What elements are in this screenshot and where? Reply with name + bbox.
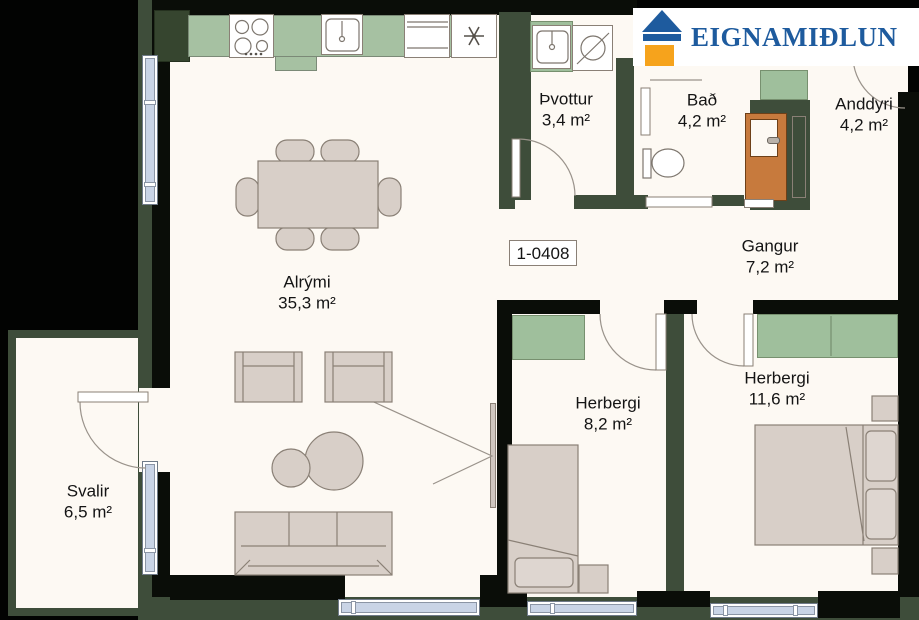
burner-icon: [252, 19, 268, 35]
burner-icon: [257, 41, 268, 52]
pillow: [515, 558, 573, 587]
room-name: Anddyri: [835, 94, 893, 115]
dining-table: [258, 161, 378, 228]
room-name: Herbergi: [575, 393, 640, 414]
dining-chair: [276, 140, 314, 163]
room-label-thvottur: Þvottur 3,4 m²: [539, 89, 593, 130]
bath-threshold: [646, 197, 712, 207]
room-label-alrymi: Alrými 35,3 m²: [278, 272, 336, 313]
coffee-table-small: [272, 449, 310, 487]
balcony-door-arc: [80, 402, 146, 468]
room-area: 11,6 m²: [744, 389, 809, 410]
dining-chair: [236, 178, 259, 216]
toilet-tank: [643, 149, 651, 178]
nightstand: [579, 565, 608, 593]
dining-chair: [321, 140, 359, 163]
room-area: 4,2 m²: [678, 111, 726, 132]
room-area: 8,2 m²: [575, 414, 640, 435]
tv-sightlines: [365, 398, 492, 484]
dining-chair: [378, 178, 401, 216]
room-area: 7,2 m²: [742, 257, 799, 278]
bedroom-1-door-leaf: [656, 314, 666, 370]
coffee-table-large: [305, 432, 363, 490]
toilet-icon: [652, 149, 684, 177]
room-name: Bað: [678, 90, 726, 111]
dining-chair: [321, 227, 359, 250]
room-name: Gangur: [742, 236, 799, 257]
room-name: Svalir: [64, 481, 112, 502]
plan-number-badge: 1-0408: [509, 240, 577, 266]
bedroom-1-door-arc: [600, 314, 656, 370]
room-area: 6,5 m²: [64, 502, 112, 523]
plan-symbols-layer: [0, 0, 919, 620]
brand-name: EIGNAMIÐLUN: [691, 22, 898, 53]
pillow: [866, 489, 896, 539]
armchair: [325, 352, 392, 402]
washer-diagonal: [577, 33, 609, 64]
dining-chair: [276, 227, 314, 250]
laundry-door-arc: [519, 139, 575, 196]
laundry-faucet-head: [550, 45, 555, 50]
dishwasher-lines: [407, 22, 448, 48]
room-label-svalir: Svalir 6,5 m²: [64, 481, 112, 522]
room-name: Þvottur: [539, 89, 593, 110]
room-label-herbergi-1: Herbergi 8,2 m²: [575, 393, 640, 434]
floor-plan-canvas: Alrými 35,3 m² Svalir 6,5 m² Þvottur 3,4…: [0, 0, 919, 620]
room-area: 4,2 m²: [835, 115, 893, 136]
room-name: Alrými: [278, 272, 336, 293]
room-label-anddyri: Anddyri 4,2 m²: [835, 94, 893, 135]
room-area: 35,3 m²: [278, 293, 336, 314]
house-icon: [642, 8, 682, 66]
bedroom-2-door-leaf: [744, 314, 753, 366]
burner-icon: [235, 38, 251, 54]
room-area: 3,4 m²: [539, 110, 593, 131]
room-label-gangur: Gangur 7,2 m²: [742, 236, 799, 277]
room-label-bad: Bað 4,2 m²: [678, 90, 726, 131]
asterisk-icon: [464, 27, 484, 45]
laundry-door-leaf: [512, 139, 520, 197]
kitchen-faucet-head: [340, 37, 345, 42]
burner-icon: [236, 21, 249, 34]
room-label-herbergi-2: Herbergi 11,6 m²: [744, 368, 809, 409]
armchair: [235, 352, 302, 402]
nightstand: [872, 396, 898, 421]
bedroom-2-door-arc: [692, 314, 744, 366]
nightstand: [872, 548, 898, 574]
bath-door-leaf: [641, 88, 650, 135]
brand-logo: EIGNAMIÐLUN: [633, 8, 919, 66]
balcony-door-leaf: [78, 392, 148, 402]
pillow: [866, 431, 896, 481]
room-name: Herbergi: [744, 368, 809, 389]
